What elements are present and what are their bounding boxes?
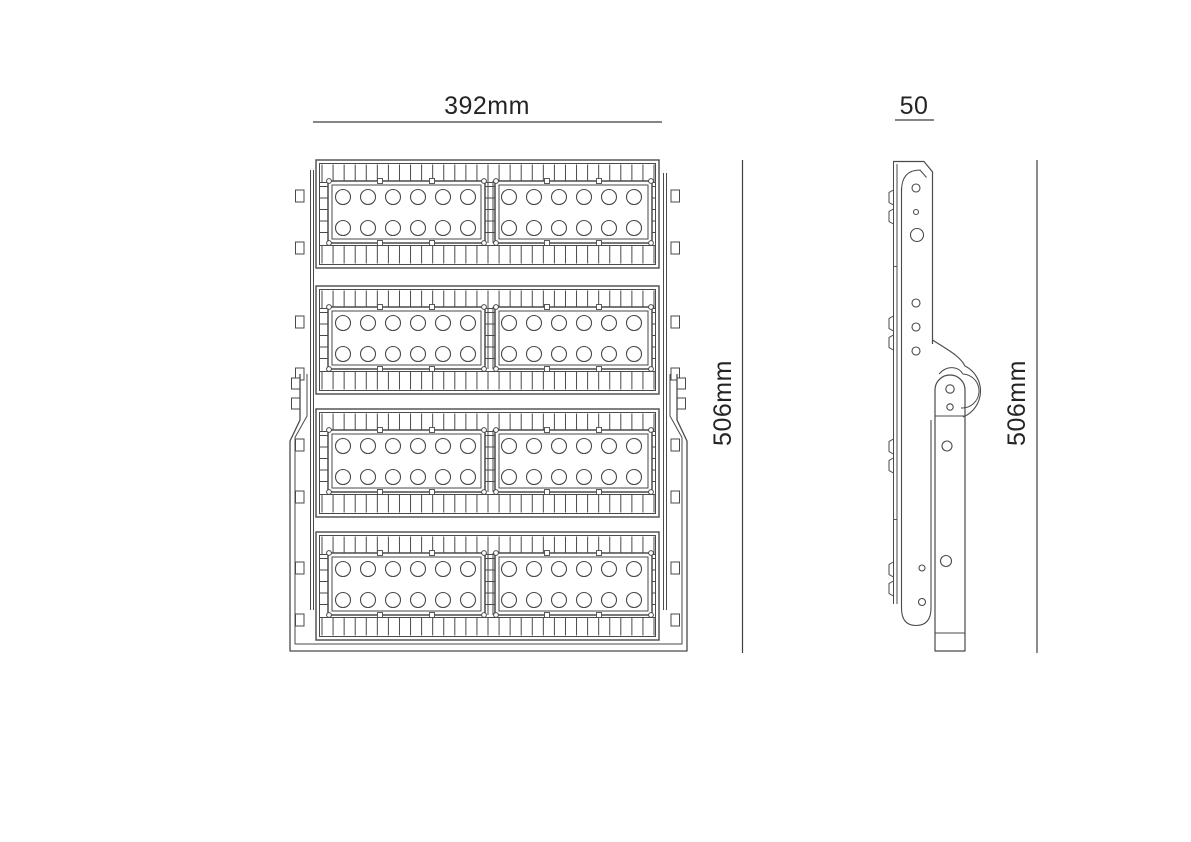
floodlight-dimension-drawing: 392mm 50 506mm 506mm xyxy=(0,0,1191,842)
side-height-dimension-label: 506mm xyxy=(1003,348,1031,458)
side-width-dimension-label: 50 xyxy=(884,92,944,120)
front-width-dimension-label: 392mm xyxy=(380,92,594,120)
front-height-dimension-label: 506mm xyxy=(709,348,737,458)
